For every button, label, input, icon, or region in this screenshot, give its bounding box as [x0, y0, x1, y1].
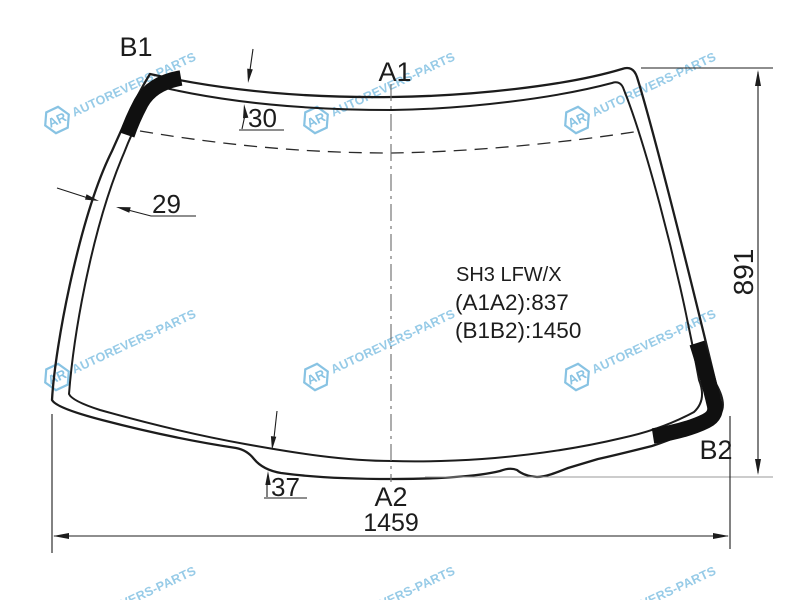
- dim-width-value: 1459: [363, 509, 419, 537]
- part-b1b2-text: (B1B2):1450: [455, 318, 581, 343]
- dim-bottom-band-value: 37: [271, 472, 300, 502]
- watermark-brand-text: AUTOREVERS-PARTS: [70, 307, 199, 377]
- arrow-right-icon: [713, 533, 729, 539]
- dim-height-value: 891: [728, 249, 759, 296]
- arrow-down-icon: [755, 459, 761, 475]
- label-b1: B1: [119, 32, 152, 62]
- arrow-up-icon: [755, 70, 761, 86]
- watermark-brand-text: AUTOREVERS-PARTS: [590, 564, 719, 600]
- leader-29-outer: [57, 188, 88, 198]
- part-code-text: SH3 LFW/X: [456, 264, 562, 286]
- watermark: ARAUTOREVERS-PARTS: [299, 559, 459, 600]
- windshield-diagram-canvas: ARAUTOREVERS-PARTSARAUTOREVERS-PARTSARAU…: [0, 0, 800, 600]
- windshield-inner-outline: [69, 82, 702, 461]
- leader-30-upper: [250, 49, 253, 70]
- leader-37-upper: [274, 411, 277, 438]
- shade-band-dashed-line: [140, 131, 640, 153]
- arrow-30-down-icon: [247, 69, 253, 83]
- watermark: ARAUTOREVERS-PARTS: [299, 302, 459, 393]
- arrow-29-right-icon: [85, 194, 99, 201]
- arrow-left-icon: [53, 533, 69, 539]
- part-a1a2-text: (A1A2):837: [455, 290, 569, 315]
- label-a2: A2: [374, 482, 407, 512]
- b2-corner-marker: [653, 343, 715, 436]
- watermark: ARAUTOREVERS-PARTS: [560, 559, 720, 600]
- diagram-page: ARAUTOREVERS-PARTSARAUTOREVERS-PARTSARAU…: [0, 0, 800, 600]
- dim-top-band-value: 30: [248, 103, 277, 133]
- watermark-brand-text: AUTOREVERS-PARTS: [329, 307, 458, 377]
- watermark: ARAUTOREVERS-PARTS: [40, 559, 200, 600]
- watermark-brand-text: AUTOREVERS-PARTS: [70, 564, 199, 600]
- watermark-brand-text: AUTOREVERS-PARTS: [329, 564, 458, 600]
- label-a1: A1: [378, 57, 411, 87]
- label-b2: B2: [699, 435, 732, 465]
- windshield-outer-outline: [52, 68, 723, 479]
- arrow-37-up-icon: [265, 471, 270, 485]
- dim-left-band-value: 29: [152, 189, 181, 219]
